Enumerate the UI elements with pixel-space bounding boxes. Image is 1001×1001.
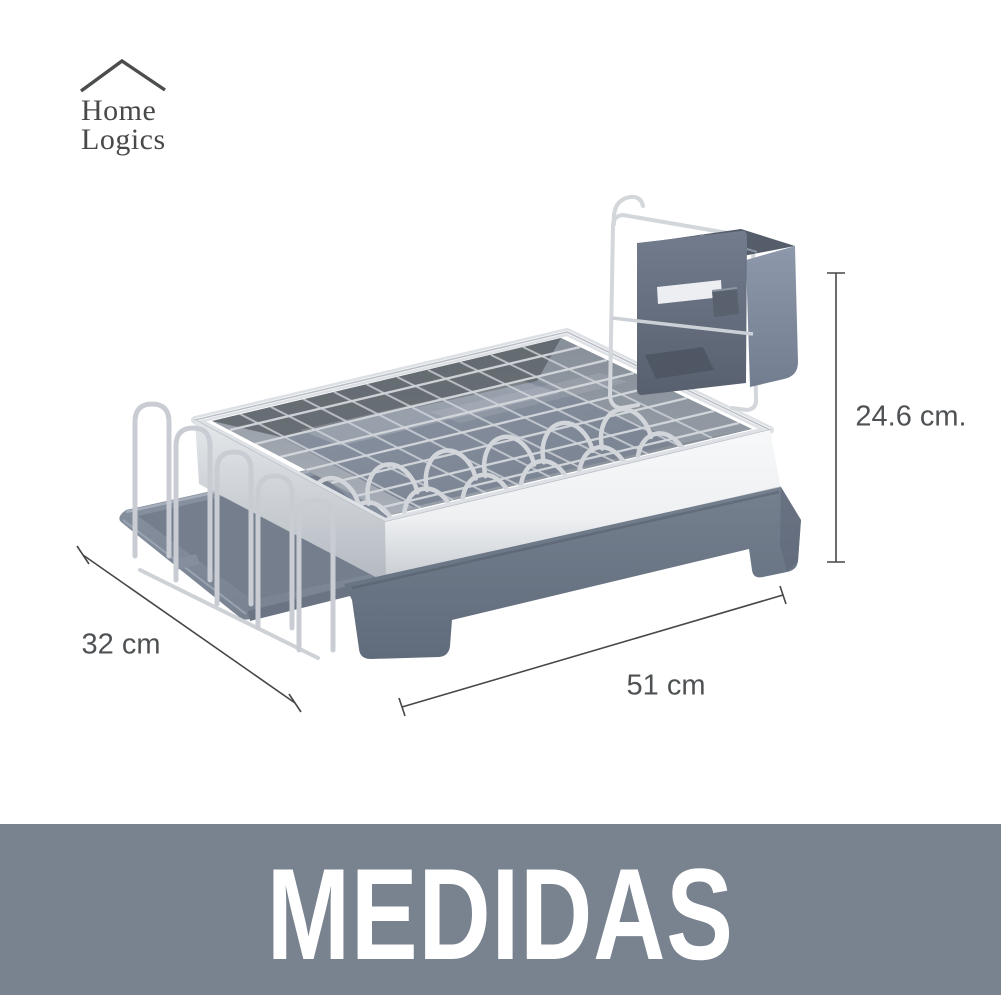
cutlery-caddy — [610, 197, 798, 410]
product-measurement-infographic: Home Logics 24.6 cm. 32 cm 51 cm MEDIDAS — [0, 0, 1001, 1001]
length-dimension-label: 51 cm — [627, 670, 706, 703]
banner-title: MEDIDAS — [267, 839, 734, 989]
roof-icon — [80, 58, 210, 98]
depth-dimension-label: 32 cm — [82, 629, 161, 662]
brand-name-line2: Logics — [81, 125, 166, 154]
brand-name: Home Logics — [81, 96, 166, 154]
height-dimension-label: 24.6 cm. — [855, 401, 966, 434]
height-dimension-line — [827, 273, 845, 562]
measurements-banner: MEDIDAS — [0, 824, 1001, 995]
brand-logo: Home Logics — [80, 58, 210, 168]
brand-name-line1: Home — [81, 96, 166, 125]
